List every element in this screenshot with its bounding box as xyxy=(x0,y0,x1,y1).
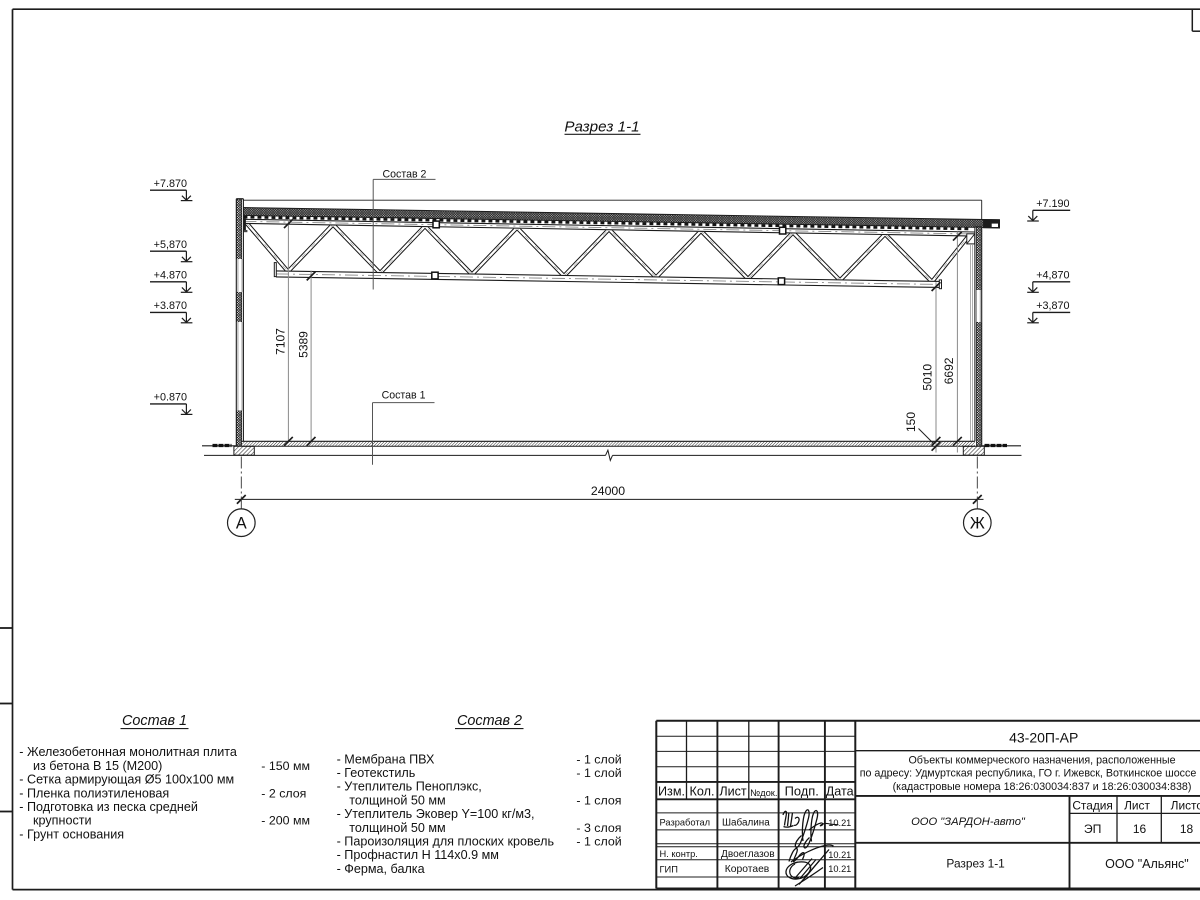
svg-text:крупности: крупности xyxy=(33,814,92,828)
svg-text:ООО "Альянс": ООО "Альянс" xyxy=(1105,857,1189,871)
svg-text:- Пароизоляция для плоских кро: - Пароизоляция для плоских кровель xyxy=(337,835,555,849)
svg-text:Лист: Лист xyxy=(1124,798,1150,812)
svg-text:Стадия: Стадия xyxy=(1072,798,1113,812)
svg-text:- 200 мм: - 200 мм xyxy=(261,814,310,828)
svg-text:Разрез 1-1: Разрез 1-1 xyxy=(564,119,639,136)
svg-text:- 1 слоя: - 1 слоя xyxy=(576,793,621,807)
svg-text:- Утеплитель Эковер Y=100 кг/м: - Утеплитель Эковер Y=100 кг/м3, xyxy=(337,807,535,821)
svg-text:+7.870: +7.870 xyxy=(154,178,187,190)
svg-text:+7.190: +7.190 xyxy=(1036,198,1069,210)
svg-text:10.21: 10.21 xyxy=(828,818,851,828)
svg-text:24000: 24000 xyxy=(591,484,625,498)
svg-text:- Профнастил Н 114х0.9 мм: - Профнастил Н 114х0.9 мм xyxy=(337,848,499,862)
svg-text:+5,870: +5,870 xyxy=(154,239,187,251)
svg-text:Разрез 1-1: Разрез 1-1 xyxy=(946,857,1005,871)
svg-text:- Подготовка из песка средней: - Подготовка из песка средней xyxy=(19,800,198,814)
svg-text:Кол.: Кол. xyxy=(690,785,715,799)
svg-text:Листов: Листов xyxy=(1171,798,1200,812)
svg-text:- Пленка полиэтиленовая: - Пленка полиэтиленовая xyxy=(19,786,169,800)
svg-text:Коротаев: Коротаев xyxy=(725,864,770,875)
svg-text:16: 16 xyxy=(1133,822,1147,836)
svg-text:Изм.: Изм. xyxy=(658,785,685,799)
svg-text:Подп.: Подп. xyxy=(785,784,819,799)
svg-text:- Ферма, балка: - Ферма, балка xyxy=(337,862,425,876)
svg-text:- Грунт основания: - Грунт основания xyxy=(19,827,124,841)
svg-text:- 2 слоя: - 2 слоя xyxy=(261,786,306,800)
svg-text:Лист: Лист xyxy=(719,785,747,799)
svg-text:Шабалина: Шабалина xyxy=(722,817,770,828)
svg-text:6692: 6692 xyxy=(942,357,956,384)
svg-text:Состав 2: Состав 2 xyxy=(457,713,522,729)
svg-text:Состав 2: Состав 2 xyxy=(383,168,427,180)
svg-text:- Утеплитель Пеноплэкс,: - Утеплитель Пеноплэкс, xyxy=(337,780,482,794)
svg-text:ООО "ЗАРДОН-авто": ООО "ЗАРДОН-авто" xyxy=(911,816,1026,828)
svg-text:Двоеглазов: Двоеглазов xyxy=(721,849,775,860)
svg-text:5389: 5389 xyxy=(297,331,311,358)
svg-text:7107: 7107 xyxy=(274,328,288,355)
svg-text:- 3 слоя: - 3 слоя xyxy=(576,821,621,835)
svg-text:10.21: 10.21 xyxy=(828,864,851,874)
svg-text:+3,870: +3,870 xyxy=(1036,300,1069,312)
svg-text:+4.870: +4.870 xyxy=(154,269,187,281)
svg-text:толщиной 50 мм: толщиной 50 мм xyxy=(349,821,445,835)
svg-text:- Мембрана ПВХ: - Мембрана ПВХ xyxy=(337,752,435,766)
svg-text:толщиной 50 мм: толщиной 50 мм xyxy=(349,793,445,807)
svg-text:+4,870: +4,870 xyxy=(1036,269,1069,281)
svg-text:- Сетка армирующая Ø5 100х100: - Сетка армирующая Ø5 100х100 мм xyxy=(19,773,234,787)
svg-text:(кадастровые номера 18:26:0300: (кадастровые номера 18:26:030034:837 и 1… xyxy=(893,781,1192,793)
svg-text:5010: 5010 xyxy=(920,364,934,391)
svg-text:Дата: Дата xyxy=(826,785,854,799)
svg-text:- 1 слой: - 1 слой xyxy=(576,752,621,766)
svg-text:- 150 мм: - 150 мм xyxy=(261,759,310,773)
svg-text:Н. контр.: Н. контр. xyxy=(660,849,698,859)
svg-text:+0.870: +0.870 xyxy=(154,392,187,404)
svg-text:Состав 1: Состав 1 xyxy=(122,713,187,729)
svg-text:по адресу: Удмуртская республи: по адресу: Удмуртская республика, ГО г. … xyxy=(860,768,1197,780)
svg-text:10.21: 10.21 xyxy=(828,850,851,860)
svg-text:- 1 слой: - 1 слой xyxy=(576,835,621,849)
svg-text:- Геотекстиль: - Геотекстиль xyxy=(337,766,416,780)
svg-text:из бетона В 15 (М200): из бетона В 15 (М200) xyxy=(33,759,162,773)
svg-text:Разработал: Разработал xyxy=(660,818,711,828)
svg-text:Объекты коммерческого назначен: Объекты коммерческого назначения, распол… xyxy=(908,754,1175,766)
svg-text:ЭП: ЭП xyxy=(1084,822,1102,836)
svg-text:Состав 1: Состав 1 xyxy=(382,389,426,401)
svg-text:150: 150 xyxy=(904,412,918,432)
svg-text:Ж: Ж xyxy=(970,515,985,533)
svg-text:№док.: №док. xyxy=(750,787,777,798)
svg-text:- 1 слой: - 1 слой xyxy=(576,766,621,780)
svg-text:ГИП: ГИП xyxy=(660,864,678,874)
svg-text:18: 18 xyxy=(1180,822,1194,836)
svg-text:+3.870: +3.870 xyxy=(154,300,187,312)
svg-text:43-20П-АР: 43-20П-АР xyxy=(1009,729,1078,745)
svg-text:- Железобетонная монолитная п: - Железобетонная монолитная плита xyxy=(19,745,237,759)
svg-text:А: А xyxy=(236,515,247,533)
